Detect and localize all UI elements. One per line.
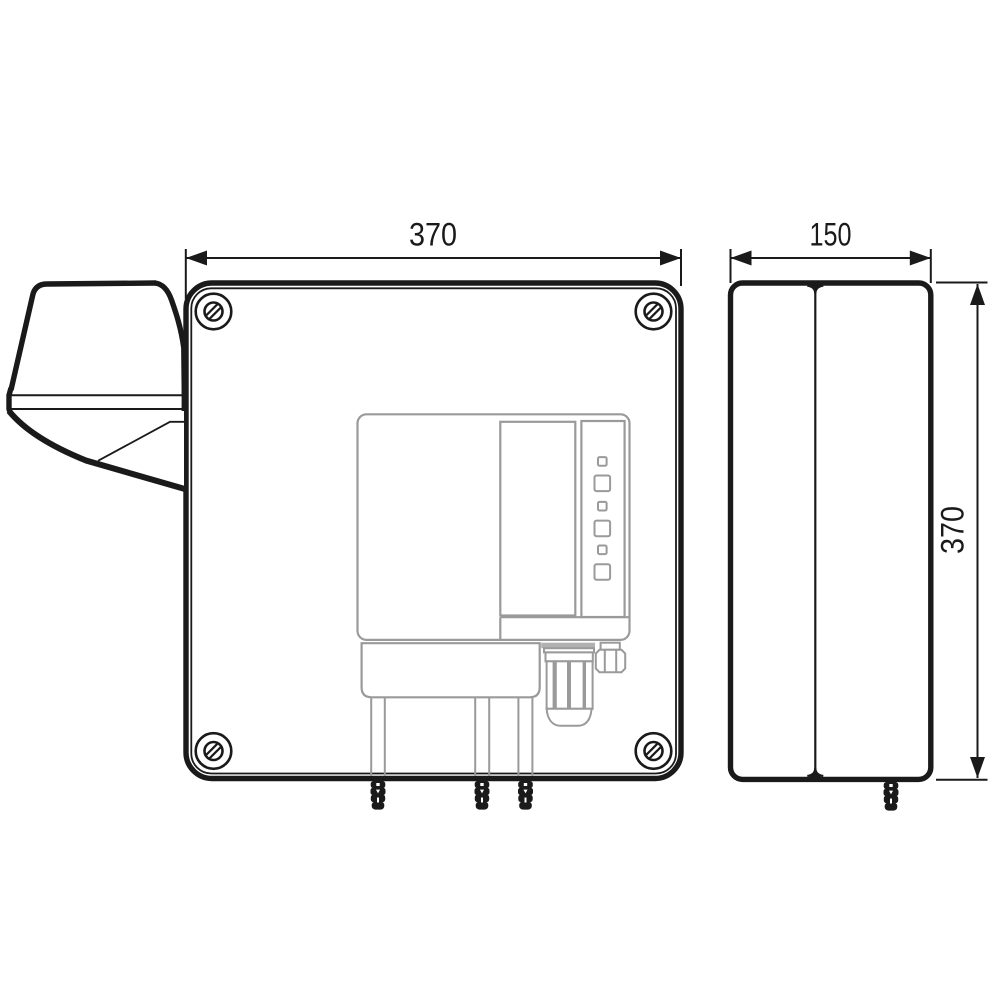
svg-text:370: 370 — [409, 217, 457, 253]
svg-text:370: 370 — [935, 506, 971, 554]
svg-text:150: 150 — [810, 217, 852, 253]
